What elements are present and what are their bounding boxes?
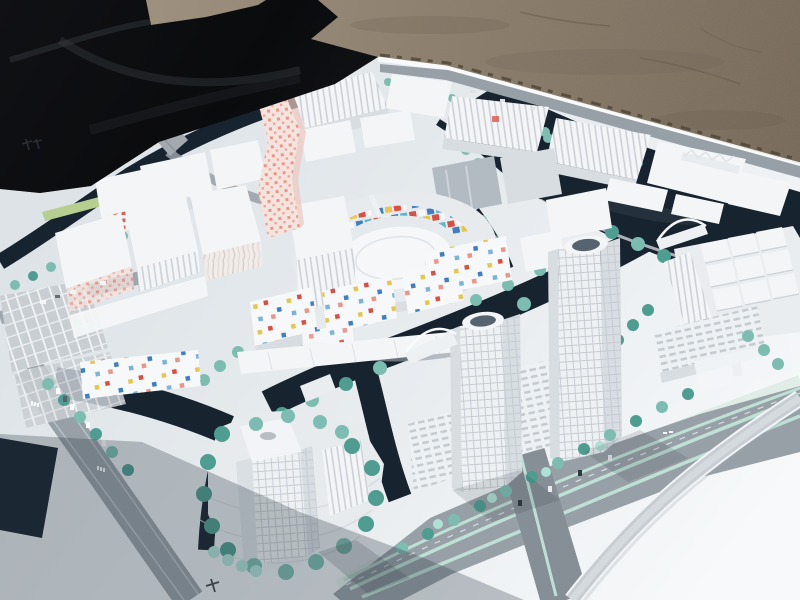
photo-stage: Architectural scale model of a waterfron… [0, 0, 800, 600]
tree [642, 304, 654, 316]
tree [28, 271, 38, 281]
tree [339, 377, 353, 391]
model-car [470, 90, 475, 93]
gravel-streak [485, 49, 725, 75]
model-car [40, 300, 46, 304]
tree [433, 519, 443, 529]
model-car [500, 99, 505, 102]
tree [682, 388, 694, 400]
tree [313, 415, 327, 429]
gravel-streak [350, 16, 510, 34]
warehouse-block [492, 116, 499, 122]
tree [368, 490, 384, 506]
tree [364, 460, 380, 476]
tree [74, 411, 86, 423]
tower2-front [558, 245, 604, 462]
model-car [55, 295, 60, 298]
tree [10, 280, 20, 290]
tree [541, 467, 551, 477]
tree [604, 429, 616, 441]
tower1-left-side [450, 326, 462, 492]
tree [281, 409, 295, 423]
tower2-left-side [548, 249, 560, 462]
tree [214, 426, 230, 442]
model-car [86, 422, 90, 428]
model-car [70, 404, 74, 410]
tree [627, 319, 639, 331]
tree [742, 330, 754, 342]
tree [46, 262, 56, 272]
model-car [70, 290, 76, 294]
tree [517, 297, 531, 311]
model-car [548, 486, 552, 492]
tree [656, 401, 668, 413]
tree [214, 360, 226, 372]
mirror-block [500, 148, 562, 204]
model-car [578, 470, 582, 476]
island-tower-roof-core [260, 432, 276, 440]
tower1-front [460, 320, 506, 492]
city-model-photo: Architectural scale model of a waterfron… [0, 0, 800, 600]
tree [631, 237, 645, 251]
tree [373, 361, 387, 375]
tree [470, 294, 482, 306]
tree [42, 378, 54, 390]
model-car [56, 388, 60, 394]
tree [758, 344, 770, 356]
tree [335, 425, 349, 439]
model-car [63, 396, 67, 402]
tree [90, 428, 102, 440]
model-car [100, 281, 106, 285]
tree [772, 358, 784, 370]
tree [358, 516, 374, 532]
tree [422, 528, 434, 540]
tree [344, 438, 360, 454]
gravel-streak [655, 110, 785, 130]
tree [200, 454, 216, 470]
tree [630, 415, 642, 427]
tree [448, 514, 460, 526]
model-car [530, 107, 535, 110]
tree [552, 457, 564, 469]
tree [249, 417, 263, 431]
